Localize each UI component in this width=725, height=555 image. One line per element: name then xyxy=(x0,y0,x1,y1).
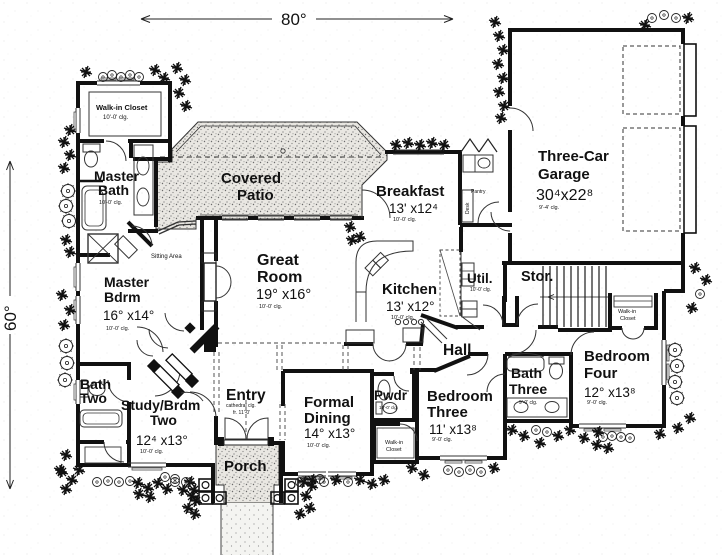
svg-text:Bedroom: Bedroom xyxy=(427,388,493,405)
svg-text:Four: Four xyxy=(584,365,617,382)
svg-text:Pwdr: Pwdr xyxy=(374,388,408,403)
svg-text:10'-0' clg.: 10'-0' clg. xyxy=(391,315,415,321)
svg-text:Covered: Covered xyxy=(221,170,281,187)
svg-text:10'-0' clg.: 10'-0' clg. xyxy=(140,449,164,455)
svg-text:Two: Two xyxy=(80,390,107,406)
svg-text:fr. 11'-0': fr. 11'-0' xyxy=(233,410,250,416)
svg-text:Util.: Util. xyxy=(467,271,493,286)
svg-text:Hall: Hall xyxy=(443,342,471,359)
svg-text:12⁴ x13°: 12⁴ x13° xyxy=(136,433,188,448)
svg-text:Two: Two xyxy=(150,412,177,428)
svg-text:10'-0' clg.: 10'-0' clg. xyxy=(393,217,417,223)
svg-text:10'-0' clg.: 10'-0' clg. xyxy=(259,304,283,310)
svg-text:Bedroom: Bedroom xyxy=(584,348,650,365)
svg-text:Walk-in Closet: Walk-in Closet xyxy=(96,103,148,112)
svg-text:9'-0' clg.: 9'-0' clg. xyxy=(519,400,537,406)
svg-text:9'-4' clg.: 9'-4' clg. xyxy=(539,205,560,211)
svg-text:80°: 80° xyxy=(281,10,307,29)
svg-text:11' x13⁸: 11' x13⁸ xyxy=(429,422,477,437)
svg-text:16° x14°: 16° x14° xyxy=(103,308,154,323)
svg-text:10'-0' clg.: 10'-0' clg. xyxy=(99,200,123,206)
svg-text:60°: 60° xyxy=(1,305,20,331)
svg-text:Bath: Bath xyxy=(511,365,542,381)
svg-text:10'-0' clg.: 10'-0' clg. xyxy=(106,326,130,332)
svg-text:Walk-in: Walk-in xyxy=(385,440,403,446)
svg-text:Patio: Patio xyxy=(237,187,274,204)
svg-text:Three-Car: Three-Car xyxy=(538,148,609,165)
svg-text:10'-0' clg.: 10'-0' clg. xyxy=(103,115,129,121)
svg-text:cathedral clg.: cathedral clg. xyxy=(226,403,256,409)
svg-text:Bath: Bath xyxy=(98,182,129,198)
svg-text:Kitchen: Kitchen xyxy=(382,281,437,298)
svg-text:Pantry: Pantry xyxy=(471,189,486,195)
svg-text:13' x12⁴: 13' x12⁴ xyxy=(389,201,438,216)
svg-text:Room: Room xyxy=(257,269,302,286)
svg-text:14° x13°: 14° x13° xyxy=(304,426,355,441)
svg-text:Stor.: Stor. xyxy=(521,269,553,285)
svg-text:19° x16°: 19° x16° xyxy=(256,287,311,303)
svg-text:Dining: Dining xyxy=(304,410,351,427)
svg-text:Master: Master xyxy=(104,274,150,290)
svg-text:13' x12°: 13' x12° xyxy=(386,299,435,314)
svg-text:9'-0' clg.: 9'-0' clg. xyxy=(432,437,453,443)
svg-text:Porch: Porch xyxy=(224,458,267,475)
svg-text:Bdrm: Bdrm xyxy=(104,289,141,305)
svg-text:10'-0' clg.: 10'-0' clg. xyxy=(470,287,491,293)
svg-text:10'-0' clg.: 10'-0' clg. xyxy=(379,405,398,410)
svg-text:Great: Great xyxy=(257,252,299,269)
svg-text:12° x13⁸: 12° x13⁸ xyxy=(584,385,636,400)
svg-text:Closet: Closet xyxy=(386,447,402,453)
svg-text:Formal: Formal xyxy=(304,394,354,411)
svg-text:30⁴x22⁸: 30⁴x22⁸ xyxy=(536,187,593,204)
svg-text:9'-0' clg.: 9'-0' clg. xyxy=(587,400,608,406)
svg-text:10'-0' clg.: 10'-0' clg. xyxy=(307,443,331,449)
svg-text:Desk: Desk xyxy=(465,202,471,214)
svg-text:Sitting Area: Sitting Area xyxy=(151,254,182,260)
svg-text:Entry: Entry xyxy=(226,387,266,404)
svg-text:Garage: Garage xyxy=(538,166,590,183)
svg-text:Study/Brdm: Study/Brdm xyxy=(121,397,200,413)
svg-text:Three: Three xyxy=(509,381,547,397)
svg-text:Closet: Closet xyxy=(620,316,636,322)
svg-text:Breakfast: Breakfast xyxy=(376,183,444,200)
svg-text:Three: Three xyxy=(427,404,468,421)
svg-text:Walk-in: Walk-in xyxy=(618,309,636,315)
